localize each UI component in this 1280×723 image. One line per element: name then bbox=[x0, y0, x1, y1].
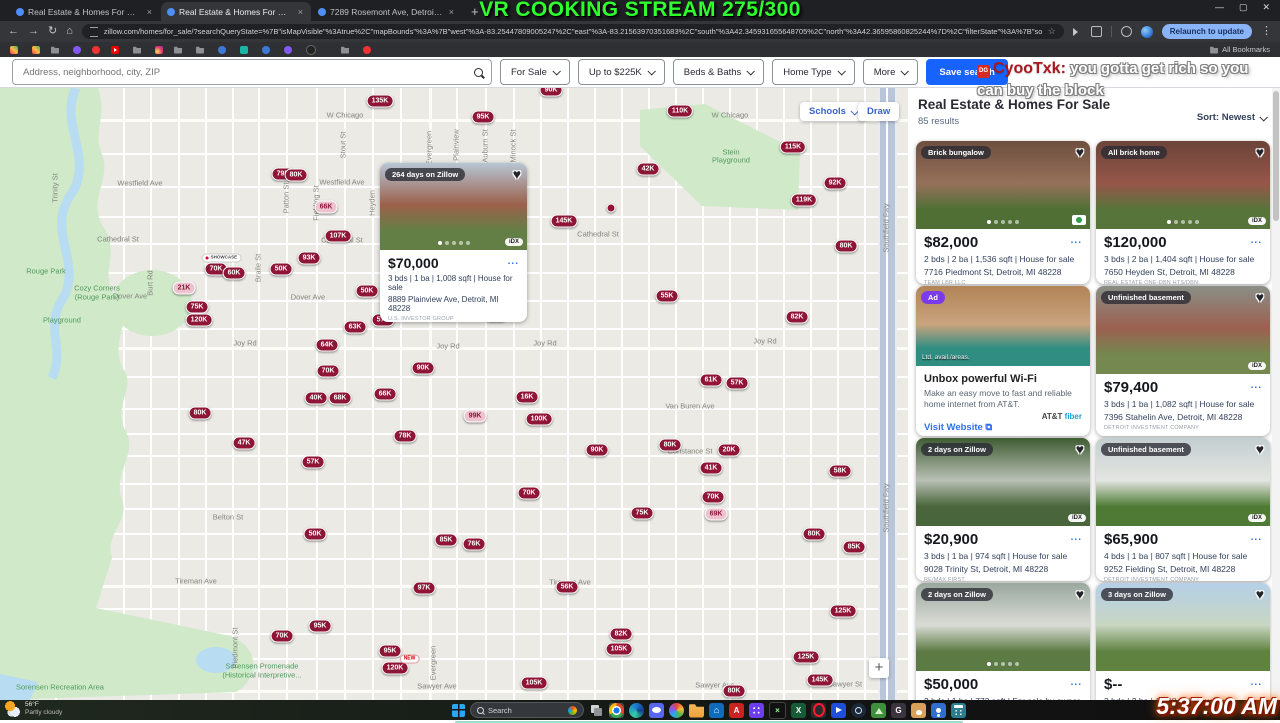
street-line bbox=[0, 558, 908, 560]
price-marker[interactable]: 80K bbox=[189, 407, 212, 420]
listing-address: 7396 Stahelin Ave, Detroit, MI 48228 bbox=[1104, 412, 1262, 422]
listing-card[interactable]: Brick bungalow♥$82,000...2 bds | 2 ba | … bbox=[916, 141, 1090, 284]
price-marker[interactable]: 60K bbox=[223, 267, 246, 280]
price-marker[interactable]: 120KNEW bbox=[382, 662, 409, 675]
price-marker[interactable]: 50K bbox=[270, 263, 293, 276]
street-label: W Chicago bbox=[327, 111, 364, 120]
carousel-dot[interactable] bbox=[987, 220, 991, 224]
street-label: Cathedral St bbox=[97, 235, 139, 244]
price-marker[interactable]: 76K bbox=[463, 538, 486, 551]
bookmark-item[interactable] bbox=[10, 46, 21, 54]
street-label: Evergreen bbox=[425, 131, 434, 166]
schools-button[interactable]: Schools bbox=[800, 102, 866, 121]
price-marker[interactable]: 135K bbox=[367, 95, 394, 108]
street-line bbox=[0, 376, 908, 378]
browser-tab[interactable]: Real Estate & Homes For Sale× bbox=[161, 2, 311, 21]
maximize-button[interactable]: ▢ bbox=[1239, 2, 1248, 13]
favorite-heart-icon[interactable]: ♥ bbox=[1256, 144, 1264, 160]
listing-info: $79,400...3 bds | 1 ba | 1,082 sqft | Ho… bbox=[1096, 374, 1270, 431]
price-marker[interactable]: 41K bbox=[700, 462, 723, 475]
back-icon[interactable]: ← bbox=[8, 26, 19, 37]
listing-agent: TEAM LBR LLC bbox=[924, 280, 1082, 284]
price-marker[interactable]: 64K bbox=[316, 339, 339, 352]
bookmark-item[interactable] bbox=[284, 46, 295, 54]
idx-badge: iDX bbox=[1248, 362, 1266, 370]
dot-purple-bookmark-icon bbox=[284, 46, 292, 54]
filter-label: Home Type bbox=[783, 67, 831, 78]
park-label: (Rouge Park) bbox=[75, 293, 120, 302]
dot-red-bookmark-icon bbox=[92, 46, 100, 54]
all-bookmarks-label: All Bookmarks bbox=[1222, 45, 1270, 54]
park-label: Sorensen Promenade bbox=[226, 662, 299, 671]
price-marker[interactable]: 95K bbox=[472, 111, 495, 124]
carousel-dot[interactable] bbox=[1188, 220, 1192, 224]
price-marker[interactable]: 66K bbox=[374, 388, 397, 401]
profile-avatar[interactable] bbox=[1141, 26, 1153, 38]
folder-bookmark-icon bbox=[174, 46, 182, 54]
bookmark-item[interactable] bbox=[51, 46, 62, 54]
street-label: Heyden bbox=[368, 190, 377, 216]
price-marker[interactable]: 92K bbox=[824, 177, 847, 190]
filter-up-to-225k[interactable]: Up to $225K bbox=[578, 59, 665, 85]
price-marker[interactable]: 47K bbox=[233, 437, 256, 450]
photo-badge: 2 days on Zillow bbox=[921, 588, 993, 601]
price-marker[interactable]: 70K bbox=[518, 487, 541, 500]
yt-bookmark-icon bbox=[111, 46, 119, 54]
carousel-dot[interactable] bbox=[994, 220, 998, 224]
price-marker[interactable]: 110K bbox=[667, 105, 693, 118]
sort-dropdown[interactable]: Sort: Newest bbox=[1197, 112, 1266, 123]
taskbar-search-label: Search bbox=[488, 706, 512, 715]
visit-website-link[interactable]: Visit Website ⧉ bbox=[924, 422, 1082, 433]
search-icon[interactable] bbox=[474, 68, 483, 77]
park-label: Rouge Park bbox=[26, 267, 66, 276]
price-marker[interactable]: 99K bbox=[464, 410, 487, 423]
street-line bbox=[0, 585, 908, 588]
price-marker[interactable]: 105K bbox=[606, 643, 633, 656]
tab-close-icon[interactable]: × bbox=[447, 7, 456, 17]
price-marker[interactable]: 50K bbox=[356, 285, 379, 298]
filter-more[interactable]: More bbox=[863, 59, 919, 85]
price-marker[interactable]: 90K bbox=[412, 362, 435, 375]
bookmark-item[interactable] bbox=[262, 46, 273, 54]
price-marker[interactable]: 61K bbox=[700, 374, 723, 387]
price-marker[interactable]: 105K bbox=[521, 677, 548, 690]
file-explorer-icon[interactable] bbox=[689, 703, 704, 718]
listing-price: $50,000 bbox=[924, 676, 1082, 693]
weather-icon bbox=[5, 701, 21, 717]
obs-black-icon[interactable] bbox=[769, 702, 786, 719]
scrollbar-thumb[interactable] bbox=[1273, 91, 1279, 221]
ad-card[interactable]: AdLtd. avail./areas.Unbox powerful Wi-Fi… bbox=[916, 286, 1090, 436]
price-marker[interactable]: 97K bbox=[413, 582, 436, 595]
listing-photo: Unfinished basement♥iDX bbox=[1096, 286, 1270, 374]
listing-menu-icon[interactable]: ... bbox=[1071, 677, 1082, 688]
favorite-heart-icon[interactable]: ♥ bbox=[1256, 289, 1264, 305]
search-icon bbox=[477, 707, 484, 714]
photo-badge: Brick bungalow bbox=[921, 146, 991, 159]
ms-store-icon[interactable] bbox=[709, 703, 724, 718]
favorite-heart-icon[interactable]: ♥ bbox=[513, 166, 521, 182]
browser-tab[interactable]: Real Estate & Homes For Sale× bbox=[10, 2, 160, 21]
minimize-button[interactable]: — bbox=[1215, 2, 1224, 13]
listing-menu-icon[interactable]: ... bbox=[508, 256, 519, 267]
street-line bbox=[0, 658, 908, 660]
browser-menu-icon[interactable]: ⋮ bbox=[1261, 26, 1272, 37]
carousel-dot[interactable] bbox=[459, 241, 463, 245]
weather-widget[interactable]: 56°F Partly cloudy bbox=[5, 701, 62, 717]
price-marker[interactable]: 55K bbox=[656, 290, 679, 303]
street-line bbox=[0, 408, 908, 410]
tab-audio-icon[interactable] bbox=[1073, 28, 1082, 36]
price-marker[interactable]: 80K bbox=[723, 685, 746, 698]
home-icon[interactable]: ⌂ bbox=[66, 26, 73, 37]
relaunch-to-update-button[interactable]: Relaunch to update bbox=[1162, 24, 1252, 39]
photo-badge: 3 days on Zillow bbox=[1101, 588, 1173, 601]
carousel-dot[interactable] bbox=[1195, 220, 1199, 224]
address-bar[interactable]: zillow.com/homes/for_sale/?searchQuerySt… bbox=[82, 24, 1064, 39]
price-marker[interactable]: 57K bbox=[726, 377, 749, 390]
park-label: Playground bbox=[712, 156, 750, 165]
dot-purple-bookmark-icon bbox=[73, 46, 81, 54]
price-marker[interactable]: 119K bbox=[791, 194, 817, 207]
listing-menu-icon[interactable]: ... bbox=[1251, 380, 1262, 391]
listing-menu-icon[interactable]: ... bbox=[1251, 235, 1262, 246]
dot-red-bookmark-icon bbox=[363, 46, 371, 54]
filter-for-sale[interactable]: For Sale bbox=[500, 59, 570, 85]
street-line bbox=[0, 508, 908, 510]
price-marker[interactable]: 70K bbox=[317, 365, 340, 378]
photo-badge: Unfinished basement bbox=[1101, 443, 1191, 456]
price-marker[interactable]: 125K bbox=[793, 651, 820, 664]
grid-bookmark-icon bbox=[10, 46, 18, 54]
price-marker[interactable]: 107K bbox=[325, 230, 352, 243]
street-line bbox=[0, 455, 908, 457]
price-marker[interactable]: 85K bbox=[435, 534, 458, 547]
carousel-dot[interactable] bbox=[452, 241, 456, 245]
bookmarks-bar: All Bookmarks bbox=[0, 42, 1280, 57]
price-marker[interactable]: 100K bbox=[526, 413, 553, 426]
listing-menu-icon[interactable]: ... bbox=[1251, 532, 1262, 543]
movies-tv-icon[interactable] bbox=[831, 703, 846, 718]
carousel-dot[interactable] bbox=[445, 241, 449, 245]
price-marker[interactable]: 69K bbox=[705, 508, 728, 521]
contacts-icon[interactable] bbox=[931, 703, 946, 718]
artstation-icon[interactable]: A bbox=[729, 703, 744, 718]
tab-title: Real Estate & Homes For Sale bbox=[179, 7, 292, 17]
browser-toolbar: ← → ↻ ⌂ zillow.com/homes/for_sale/?searc… bbox=[0, 21, 1280, 42]
stream-chat-overlay: DGCyooTxk: you gotta get rich so you can… bbox=[977, 57, 1277, 102]
listing-photo: 2 days on Zillow♥iDX bbox=[916, 438, 1090, 526]
listing-card[interactable]: 3 days on Zillow♥$--...3 bds | 2 ba | 1,… bbox=[1096, 583, 1270, 700]
close-button[interactable]: ✕ bbox=[1262, 2, 1270, 13]
park-label: (Historical Interpretive... bbox=[222, 671, 301, 680]
price-marker[interactable]: 125K bbox=[830, 605, 857, 618]
bookmark-item[interactable] bbox=[92, 46, 100, 54]
tab-title: Real Estate & Homes For Sale bbox=[28, 7, 141, 17]
street-label: W Chicago bbox=[712, 111, 749, 120]
listing-price: $70,000 bbox=[388, 255, 519, 271]
chevron-down-icon bbox=[901, 67, 909, 75]
dark-bookmark-icon bbox=[306, 45, 316, 55]
globe-bookmark-icon bbox=[218, 46, 226, 54]
photos-icon[interactable] bbox=[669, 703, 684, 718]
price-marker[interactable]: 78K bbox=[394, 430, 417, 443]
bookmark-item[interactable] bbox=[196, 46, 207, 54]
bookmark-star-icon[interactable]: ☆ bbox=[1048, 26, 1056, 37]
zillow-favicon-icon bbox=[167, 8, 175, 16]
street-label: Westfield Ave bbox=[117, 179, 162, 188]
browser-tab[interactable]: 7289 Rosemont Ave, Detroit, M...× bbox=[312, 2, 462, 21]
filter-label: More bbox=[874, 67, 896, 78]
start-button[interactable] bbox=[452, 704, 465, 717]
listing-price: $-- bbox=[1104, 676, 1262, 693]
bookmark-item[interactable] bbox=[73, 46, 81, 54]
map[interactable]: Schools Draw + 264 days on Zillow♥iDX$70… bbox=[0, 88, 908, 700]
carousel-dot[interactable] bbox=[994, 662, 998, 666]
price-marker[interactable]: 82K bbox=[786, 311, 809, 324]
price-marker[interactable]: 90K bbox=[586, 444, 609, 457]
bookmark-item[interactable] bbox=[133, 46, 144, 54]
favorite-heart-icon[interactable]: ♥ bbox=[1256, 586, 1264, 602]
listing-menu-icon[interactable]: ... bbox=[1071, 532, 1082, 543]
chevron-down-icon bbox=[647, 67, 655, 75]
task-view-icon[interactable] bbox=[589, 703, 604, 718]
idx-badge: iDX bbox=[505, 238, 523, 246]
street-label: Belton St bbox=[213, 513, 243, 522]
edge-icon[interactable] bbox=[629, 703, 644, 718]
listing-menu-icon[interactable]: ... bbox=[1251, 677, 1262, 688]
carousel-dot[interactable] bbox=[466, 241, 470, 245]
filter-home-type[interactable]: Home Type bbox=[772, 59, 854, 85]
bookmark-item[interactable] bbox=[155, 46, 163, 54]
favorite-heart-icon[interactable]: ♥ bbox=[1076, 586, 1084, 602]
chat-username: CyooTxk: bbox=[993, 60, 1066, 77]
folder-bookmark-icon bbox=[51, 46, 59, 54]
side-panel-icon[interactable] bbox=[1121, 26, 1132, 37]
bookmark-item[interactable] bbox=[363, 46, 374, 54]
price-marker[interactable]: 80K bbox=[835, 240, 858, 253]
calculator-icon[interactable] bbox=[951, 703, 966, 718]
price-marker[interactable]: 95K bbox=[379, 645, 402, 658]
price-marker[interactable]: 80K bbox=[803, 528, 826, 541]
carousel-dot[interactable] bbox=[1001, 662, 1005, 666]
all-bookmarks-button[interactable]: All Bookmarks bbox=[1210, 45, 1270, 54]
carousel-dot[interactable] bbox=[987, 662, 991, 666]
listing-details: 4 bds | 1 ba | 807 sqft | House for sale bbox=[1104, 551, 1262, 561]
screenshot-tool-icon[interactable] bbox=[871, 703, 886, 718]
park-label: Cozy Corners bbox=[74, 284, 120, 293]
carousel-dots[interactable] bbox=[987, 220, 1019, 224]
site-settings-icon[interactable] bbox=[90, 27, 98, 37]
tab-title: 7289 Rosemont Ave, Detroit, M... bbox=[330, 7, 443, 17]
panel-scrollbar[interactable] bbox=[1272, 88, 1280, 700]
listing-info: $65,900...4 bds | 1 ba | 807 sqft | Hous… bbox=[1096, 526, 1270, 581]
listing-card[interactable]: All brick home♥iDX$120,000...3 bds | 2 b… bbox=[1096, 141, 1270, 284]
carousel-dot[interactable] bbox=[1181, 220, 1185, 224]
price-marker[interactable]: 21K bbox=[173, 282, 196, 295]
price-marker[interactable]: 70K bbox=[271, 630, 294, 643]
price-marker[interactable]: 20K bbox=[718, 444, 741, 457]
southfield-freeway bbox=[878, 88, 897, 700]
listing-agent: U.S. INVESTOR GROUP bbox=[388, 316, 519, 322]
discord-icon[interactable] bbox=[649, 703, 664, 718]
price-marker[interactable]: 40K bbox=[305, 392, 328, 405]
idx-badge: iDX bbox=[1248, 514, 1266, 522]
forward-icon[interactable]: → bbox=[28, 26, 39, 37]
map-listing-popup[interactable]: 264 days on Zillow♥iDX$70,000...3 bds | … bbox=[380, 163, 527, 322]
bookmark-item[interactable] bbox=[240, 46, 251, 54]
bookmark-item[interactable] bbox=[306, 45, 319, 55]
price-marker[interactable]: 120K bbox=[186, 314, 213, 327]
price-marker[interactable]: 85K bbox=[843, 541, 866, 554]
listing-card[interactable]: Unfinished basement♥iDX$79,400...3 bds |… bbox=[1096, 286, 1270, 436]
carousel-dot[interactable] bbox=[1167, 220, 1171, 224]
new-badge: NEW bbox=[400, 655, 420, 664]
app-grid-icon[interactable] bbox=[749, 703, 764, 718]
carousel-dot[interactable] bbox=[1001, 220, 1005, 224]
carousel-dot[interactable] bbox=[1015, 220, 1019, 224]
street-line bbox=[0, 433, 908, 435]
photo-badge: 264 days on Zillow bbox=[385, 168, 465, 181]
listing-card[interactable]: Unfinished basement♥iDX$65,900...4 bds |… bbox=[1096, 438, 1270, 581]
price-marker[interactable]: 115K bbox=[780, 141, 806, 154]
street-line bbox=[0, 328, 908, 330]
price-marker[interactable]: 42K bbox=[637, 163, 660, 176]
listing-info: $120,000...3 bds | 2 ba | 1,404 sqft | H… bbox=[1096, 229, 1270, 284]
bookmark-item[interactable] bbox=[111, 46, 122, 54]
photo-badge: All brick home bbox=[1101, 146, 1167, 159]
location-search-box[interactable] bbox=[12, 59, 492, 85]
gog-icon[interactable]: G bbox=[891, 703, 906, 718]
carousel-dots[interactable] bbox=[438, 241, 470, 245]
price-marker[interactable]: 93K bbox=[298, 252, 321, 265]
street-label: Patton St bbox=[282, 183, 291, 214]
price-marker[interactable] bbox=[607, 204, 616, 213]
taskbar-search[interactable]: Search bbox=[470, 702, 584, 718]
price-marker[interactable]: 16K bbox=[516, 391, 539, 404]
carousel-dot[interactable] bbox=[1174, 220, 1178, 224]
url-text: zillow.com/homes/for_sale/?searchQuerySt… bbox=[104, 27, 1042, 36]
new-tab-button[interactable]: + bbox=[471, 4, 479, 21]
windows-taskbar: 56°F Partly cloudy Search AXG bbox=[0, 700, 1280, 720]
listing-card[interactable]: 2 days on Zillow♥$50,000...2 bds | 1 ba … bbox=[916, 583, 1090, 700]
excel-icon[interactable]: X bbox=[791, 703, 806, 718]
toolbar-divider bbox=[1111, 26, 1112, 37]
chrome-icon[interactable] bbox=[609, 703, 624, 718]
reload-icon[interactable]: ↻ bbox=[48, 26, 57, 37]
idx-badge: iDX bbox=[1248, 217, 1266, 225]
listing-price: $120,000 bbox=[1104, 234, 1262, 251]
price-marker[interactable]: 50K bbox=[304, 528, 327, 541]
listing-menu-icon[interactable]: ... bbox=[1071, 235, 1082, 246]
price-marker[interactable]: 66K bbox=[315, 201, 338, 214]
listing-price: $82,000 bbox=[924, 234, 1082, 251]
price-marker[interactable]: 75K bbox=[186, 301, 209, 314]
map-zoom-in-button[interactable]: + bbox=[869, 658, 889, 678]
clock-overlay: 5:37:00 AM bbox=[1156, 693, 1277, 720]
ad-title: Unbox powerful Wi-Fi bbox=[924, 373, 1082, 385]
listing-address: 9028 Trinity St, Detroit, MI 48228 bbox=[924, 564, 1082, 574]
folder-icon bbox=[1210, 46, 1218, 54]
price-marker[interactable]: 57K bbox=[302, 456, 325, 469]
bookmark-item[interactable] bbox=[341, 46, 352, 54]
listing-agent: DETROIT INVESTMENT COMPANY bbox=[1104, 577, 1262, 581]
draw-button[interactable]: Draw bbox=[858, 102, 899, 121]
street-label: Southfield Fwy bbox=[882, 203, 891, 252]
steam-icon[interactable] bbox=[851, 703, 866, 718]
price-marker[interactable]: 80K bbox=[285, 169, 308, 182]
street-label: Burt Rd bbox=[146, 270, 155, 295]
price-marker[interactable]: 145K bbox=[551, 215, 578, 228]
bookmark-item[interactable] bbox=[174, 46, 185, 54]
price-marker[interactable]: 70K bbox=[702, 491, 725, 504]
carousel-dots[interactable] bbox=[987, 662, 1019, 666]
tab-close-icon[interactable]: × bbox=[296, 7, 305, 17]
favorite-heart-icon[interactable]: ♥ bbox=[1256, 441, 1264, 457]
favorite-heart-icon[interactable]: ♥ bbox=[1076, 441, 1084, 457]
extensions-icon[interactable] bbox=[1091, 26, 1102, 37]
location-search-input[interactable] bbox=[21, 66, 474, 79]
price-marker[interactable]: 80K bbox=[659, 439, 682, 452]
photo-badge: 2 days on Zillow bbox=[921, 443, 993, 456]
chat-badge-icon: DG bbox=[977, 65, 990, 78]
street-label: Joy Rd bbox=[753, 337, 776, 346]
listing-agent: RE/MAX FIRST bbox=[924, 577, 1082, 581]
listing-info: $82,000...2 bds | 2 ba | 1,536 sqft | Ho… bbox=[916, 229, 1090, 284]
carousel-dot[interactable] bbox=[1015, 662, 1019, 666]
price-marker[interactable]: 56K bbox=[556, 581, 579, 594]
bookmark-item[interactable] bbox=[32, 46, 40, 54]
street-label: Joy Rd bbox=[533, 339, 556, 348]
price-marker[interactable]: 82K bbox=[610, 628, 633, 641]
idx-badge: iDX bbox=[1068, 514, 1086, 522]
listing-price: $65,900 bbox=[1104, 531, 1262, 548]
price-marker[interactable]: 58K bbox=[829, 465, 852, 478]
weather-desc: Partly cloudy bbox=[25, 709, 62, 717]
carousel-dot[interactable] bbox=[1008, 220, 1012, 224]
tab-close-icon[interactable]: × bbox=[145, 7, 154, 17]
price-marker[interactable]: 68K bbox=[329, 392, 352, 405]
price-marker[interactable]: 95K bbox=[309, 620, 332, 633]
opera-icon[interactable] bbox=[811, 703, 826, 718]
listing-address: 9252 Fielding St, Detroit, MI 48228 bbox=[1104, 564, 1262, 574]
listing-details: 3 bds | 1 ba | 1,082 sqft | House for sa… bbox=[1104, 399, 1262, 409]
carousel-dot[interactable] bbox=[438, 241, 442, 245]
street-label: Joy Rd bbox=[436, 342, 459, 351]
price-marker[interactable]: 63K bbox=[344, 321, 367, 334]
street-label: Westfield Ave bbox=[319, 178, 364, 187]
street-label: Southfield Fwy bbox=[882, 483, 891, 532]
bookmark-item[interactable] bbox=[218, 46, 229, 54]
listing-address: 7650 Heyden St, Detroit, MI 48228 bbox=[1104, 267, 1262, 277]
price-marker[interactable]: 90K bbox=[540, 88, 563, 97]
corgi-app-icon[interactable] bbox=[911, 703, 926, 718]
listing-card[interactable]: 2 days on Zillow♥iDX$20,900...3 bds | 1 … bbox=[916, 438, 1090, 581]
listing-address: 7716 Piedmont St, Detroit, MI 48228 bbox=[924, 267, 1082, 277]
price-marker[interactable]: 145K bbox=[807, 674, 834, 687]
carousel-dots[interactable] bbox=[1167, 220, 1199, 224]
listing-photo: 2 days on Zillow♥ bbox=[916, 583, 1090, 671]
price-marker[interactable]: 75K bbox=[631, 507, 654, 520]
favorite-heart-icon[interactable]: ♥ bbox=[1076, 144, 1084, 160]
carousel-dot[interactable] bbox=[1008, 662, 1012, 666]
filter-beds-baths[interactable]: Beds & Baths bbox=[673, 59, 765, 85]
active-app-indicator bbox=[609, 703, 624, 718]
chevron-down-icon bbox=[552, 67, 560, 75]
street-label: Auburn St bbox=[481, 129, 490, 162]
chevron-down-icon bbox=[837, 67, 845, 75]
